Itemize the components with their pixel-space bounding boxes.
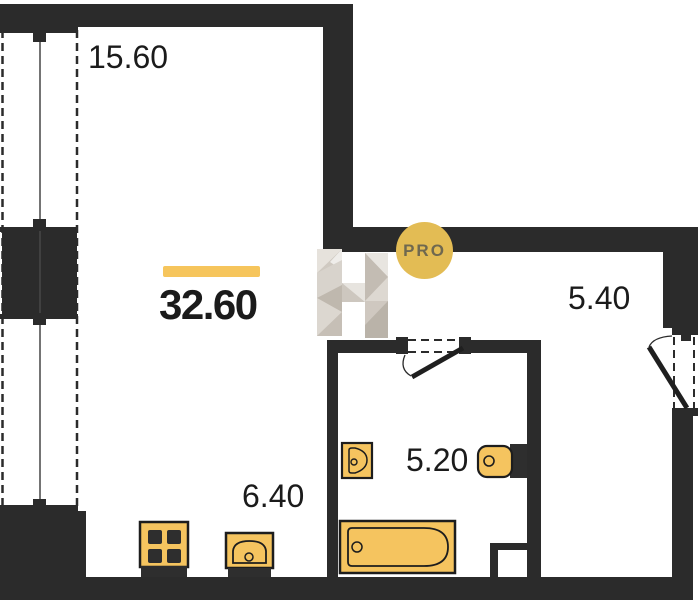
bathroom-door (403, 340, 463, 377)
hallway-area-label: 5.40 (568, 281, 630, 316)
bathtub (340, 521, 455, 573)
total-area-underline (163, 266, 260, 277)
entrance-door (649, 336, 694, 408)
balcony-glazing (3, 30, 78, 511)
pro-watermark-badge: PRO (396, 222, 453, 279)
bathroom-area-label: 5.20 (406, 443, 468, 478)
watermark-logo (317, 249, 388, 338)
main-room-area-label: 15.60 (88, 40, 168, 75)
stove (140, 522, 188, 577)
floor-plan: 15.60 32.60 5.40 5.20 6.40 PRO (0, 0, 700, 600)
total-area-label: 32.60 (159, 282, 257, 328)
kitchen-sink (226, 533, 273, 577)
bathroom-door-swing-arc (403, 355, 411, 376)
toilet (478, 444, 527, 478)
entrance-door-swing-arc (649, 336, 672, 347)
fixtures (140, 443, 527, 577)
wash-basin (342, 443, 372, 478)
entrance-door-leaf (649, 347, 687, 408)
kitchen-area-label: 6.40 (242, 479, 304, 514)
